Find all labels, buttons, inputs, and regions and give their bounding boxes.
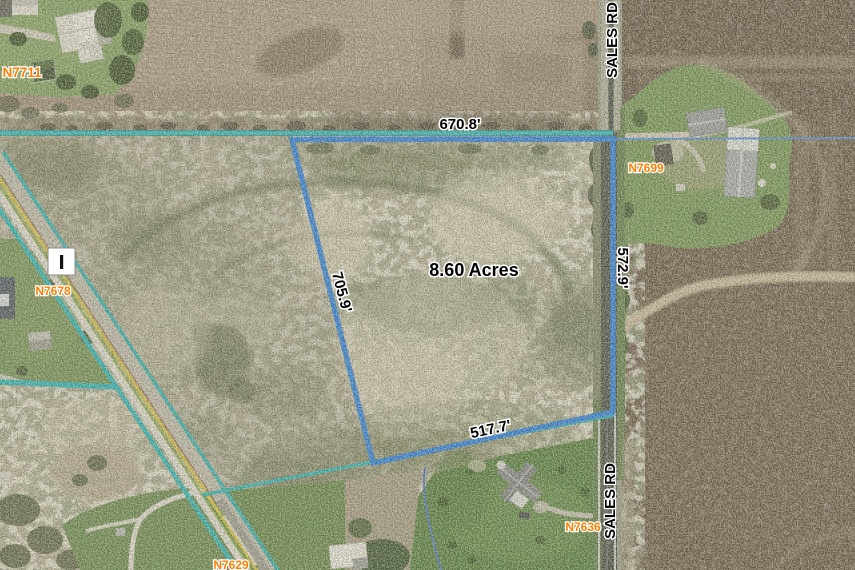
svg-text:N7711: N7711	[2, 65, 42, 80]
svg-text:572.9': 572.9'	[614, 247, 631, 288]
svg-text:670.8': 670.8'	[439, 116, 480, 133]
svg-text:N7678: N7678	[35, 284, 71, 298]
svg-text:8.60 Acres: 8.60 Acres	[429, 260, 518, 280]
svg-text:SALES RD: SALES RD	[602, 463, 619, 539]
svg-text:N7699: N7699	[628, 161, 664, 175]
svg-text:SALES RD: SALES RD	[604, 2, 621, 78]
svg-text:N7636: N7636	[565, 520, 601, 534]
svg-text:N7629: N7629	[213, 558, 249, 570]
